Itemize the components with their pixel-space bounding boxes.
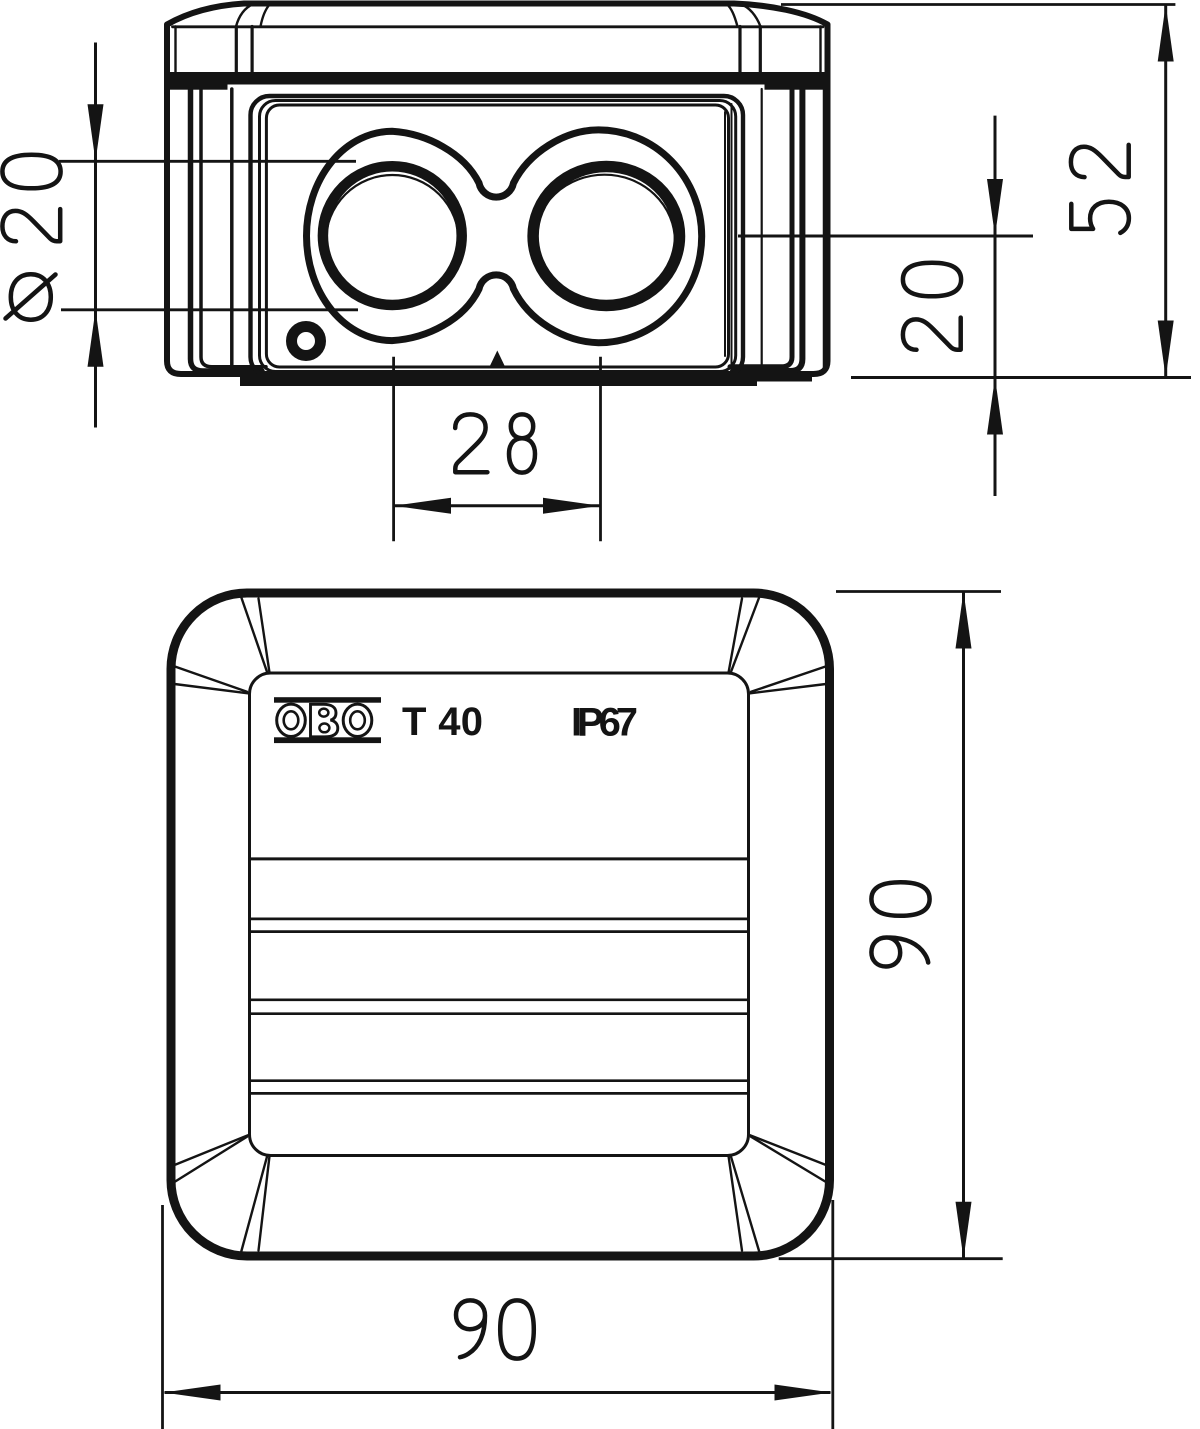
svg-text:IP67: IP67: [571, 701, 638, 745]
svg-text:T 40: T 40: [402, 700, 483, 744]
